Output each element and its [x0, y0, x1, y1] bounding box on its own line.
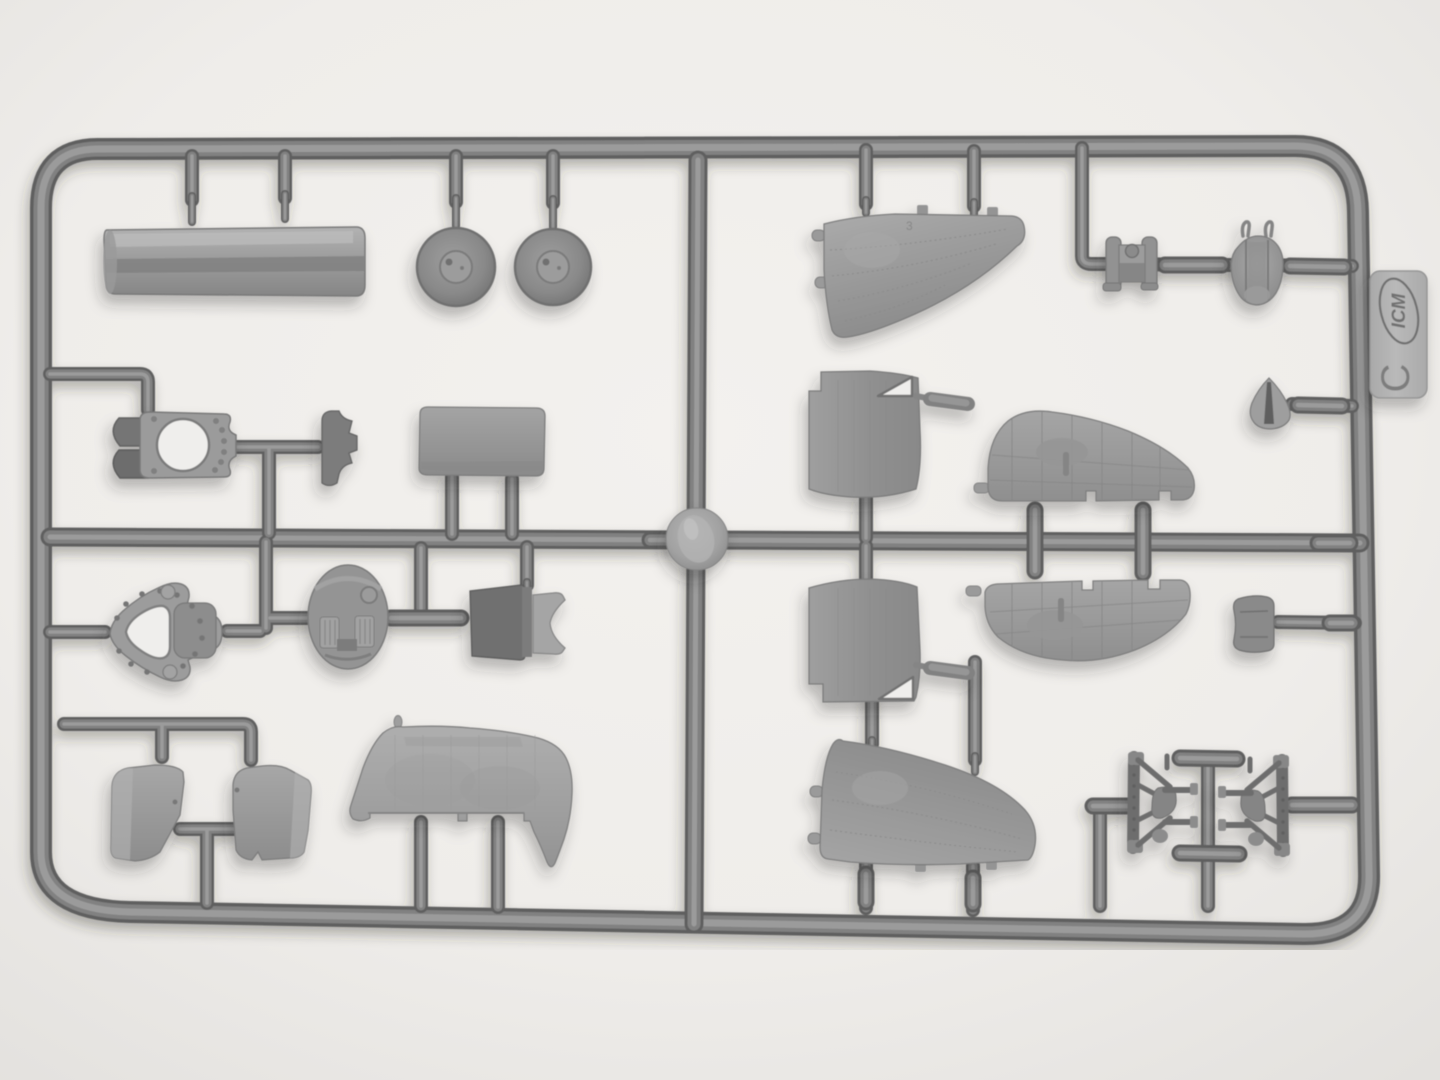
svg-text:3: 3 — [906, 219, 913, 233]
svg-text:ICM: ICM — [1389, 292, 1410, 328]
svg-text:C: C — [1374, 364, 1418, 393]
